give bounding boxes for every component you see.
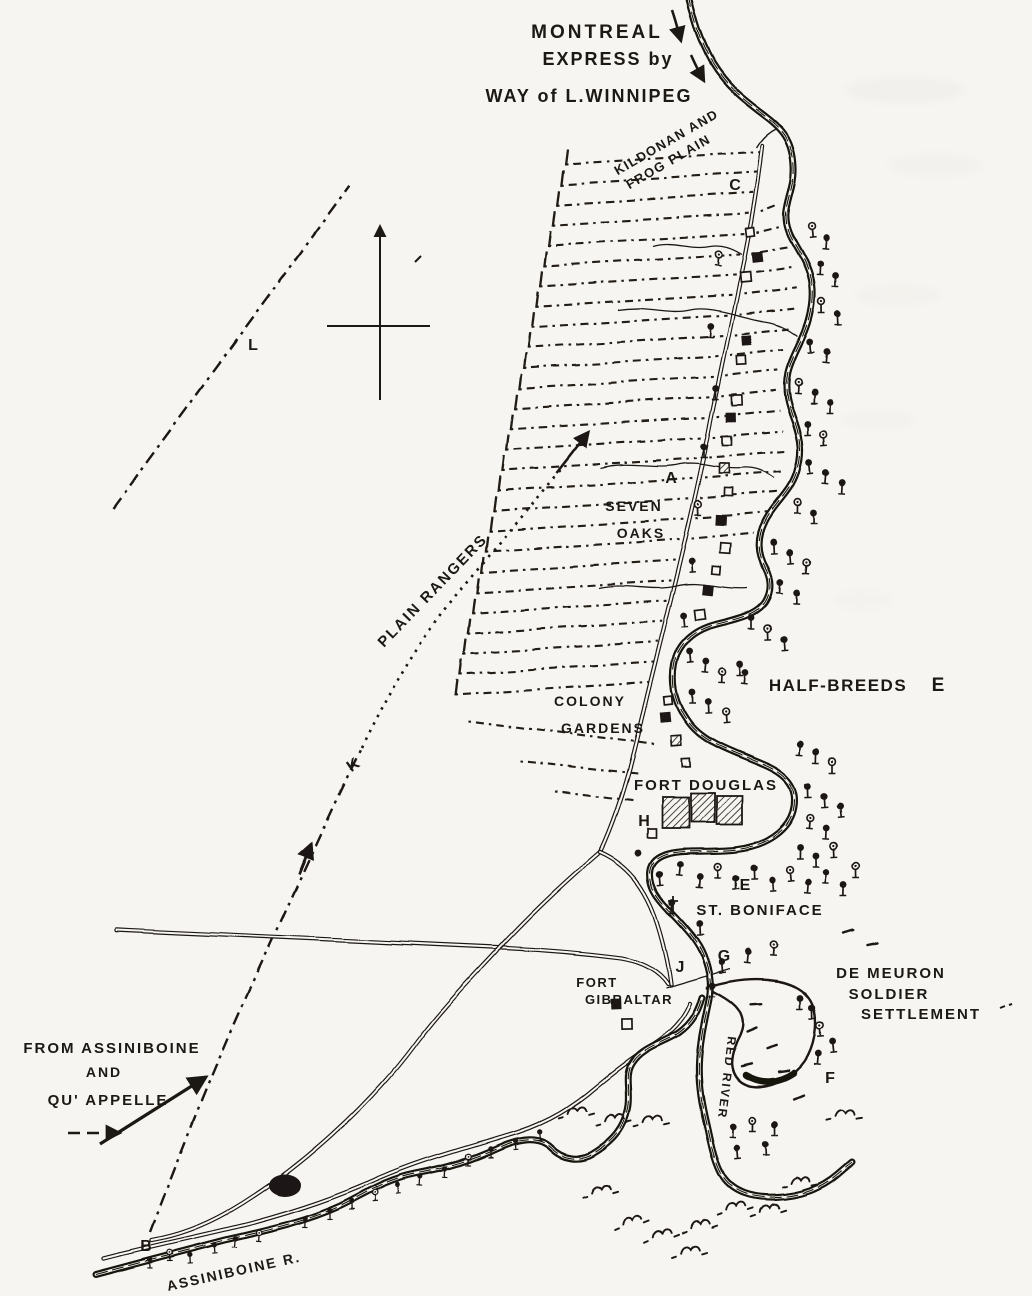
map-line (473, 601, 667, 613)
map-line (541, 274, 736, 286)
house-icon (664, 696, 673, 705)
tree-icon (714, 250, 722, 265)
tree-icon (816, 1022, 824, 1037)
label-de-meuron-1: DE MEURON (836, 965, 946, 982)
house-icon (622, 1019, 632, 1029)
map-line (498, 478, 693, 490)
tree-icon (822, 348, 830, 363)
tree-icon (806, 338, 814, 353)
house-icon (723, 436, 732, 445)
map-line (515, 394, 517, 410)
tree-icon (749, 1117, 756, 1132)
map-line (748, 267, 792, 273)
tree-icon (829, 759, 836, 773)
tree-icon (770, 940, 778, 955)
bush-icon (681, 1218, 717, 1233)
road-junction-dot (635, 850, 642, 857)
tree-icon (820, 430, 828, 445)
tree-icon (804, 420, 811, 435)
map-line (498, 475, 500, 491)
bush-icon (643, 1228, 679, 1244)
map-line (511, 417, 706, 429)
map-labels: MONTREAL EXPRESS by WAY of L.WINNIPEG KI… (23, 22, 1012, 1294)
map-line (460, 659, 462, 675)
marsh-dash (843, 929, 853, 932)
tree-icon (764, 624, 771, 639)
map-line (692, 533, 754, 539)
marsh-dash (779, 1070, 789, 1073)
map-line (524, 356, 719, 368)
tree-icon (780, 634, 788, 649)
map-line (743, 288, 796, 294)
label-from-assiniboine-3: QU' APPELLE (48, 1092, 169, 1109)
map-line (536, 295, 731, 307)
route-arrows (68, 10, 704, 1144)
tree-icon (442, 1166, 448, 1177)
marker-k: K (344, 755, 364, 776)
label-montreal-3: WAY of L.WINNIPEG (485, 86, 692, 106)
tree-icon (729, 1122, 737, 1137)
tree-icon (733, 875, 740, 889)
house-icon (743, 336, 752, 345)
tree-icon (696, 920, 704, 935)
map-line (511, 414, 513, 430)
marker-b: B (140, 1238, 152, 1255)
tree-icon (741, 668, 749, 683)
tree-icon (808, 222, 816, 237)
house-icon (752, 252, 762, 262)
marker-e-half-breeds: E (932, 675, 945, 696)
tree-icon (762, 1140, 770, 1155)
map-line (507, 438, 702, 450)
map-line (761, 206, 776, 212)
map-line (502, 458, 697, 470)
marker-h: H (638, 813, 650, 830)
map-figure: MONTREAL EXPRESS by WAY of L.WINNIPEG KI… (0, 0, 1032, 1296)
tree-icon (702, 658, 710, 673)
house-icon (703, 585, 713, 595)
map-line (558, 190, 560, 206)
tree-icon (768, 876, 776, 891)
tree-icon (676, 860, 684, 875)
tree-icon (806, 458, 814, 473)
house-icon (716, 515, 725, 524)
map-line (524, 353, 526, 369)
label-gardens: GARDENS (561, 720, 645, 736)
tree-icon (372, 1190, 378, 1202)
label-montreal-1: MONTREAL (531, 22, 663, 43)
montreal-express-arrow-2 (691, 55, 704, 81)
tree-icon (831, 273, 838, 288)
label-assiniboine-river: ASSINIBOINE R. (165, 1249, 302, 1294)
map-line (519, 373, 521, 389)
tree-icon (733, 1144, 741, 1159)
tree-icon (694, 500, 701, 515)
marsh-dash (741, 1064, 751, 1066)
tree-icon (187, 1252, 193, 1263)
tree-icon (688, 557, 696, 572)
road-river-branch (756, 128, 777, 148)
label-fort-douglas: FORT DOUGLAS (634, 777, 778, 794)
map-line (735, 329, 789, 335)
tree-icon (822, 468, 830, 483)
map-line (739, 308, 794, 314)
bush-icon (716, 1201, 752, 1215)
marsh-dash (747, 1029, 757, 1033)
label-montreal-2: EXPRESS by (542, 49, 673, 69)
trail-L-line (113, 186, 350, 508)
montreal-express-arrow-1 (672, 10, 681, 41)
map-line (507, 435, 509, 451)
label-de-meuron-2: SOLDIER (849, 986, 930, 1003)
house-icon (682, 759, 690, 767)
map-line (726, 369, 778, 375)
tree-icon (792, 588, 799, 603)
tree-icon (749, 615, 756, 629)
map-line (481, 557, 483, 573)
tree-icon (722, 708, 730, 723)
map-line (528, 333, 530, 349)
map-line (553, 210, 555, 226)
marker-f: F (825, 1070, 835, 1087)
tree-icon (770, 538, 778, 553)
marsh-dash (751, 1003, 761, 1006)
map-line (473, 598, 475, 614)
marsh-dash (767, 1045, 777, 1048)
label-st-boniface: ST. BONIFACE (696, 902, 823, 919)
marsh-dash (867, 942, 877, 944)
bush-icon (672, 1245, 708, 1258)
tree-icon (680, 612, 688, 627)
map-line (536, 292, 538, 308)
map-line (558, 193, 754, 205)
house-icon (719, 463, 729, 473)
tree-icon (656, 870, 664, 885)
tree-icon (822, 868, 830, 883)
tree-icon (696, 872, 704, 887)
tree-icon (804, 878, 812, 893)
label-half-breeds: HALF-BREEDS (769, 676, 907, 695)
bush-icon (782, 1177, 817, 1187)
map-line (494, 496, 496, 512)
house-icon (740, 272, 751, 283)
tree-icon (796, 740, 804, 755)
house-icon (732, 395, 742, 405)
map-line (532, 315, 727, 327)
map-line (700, 492, 777, 498)
map-line (468, 621, 662, 633)
tree-icon (812, 748, 819, 763)
tree-icon (794, 499, 801, 514)
tree-icon (852, 863, 859, 878)
map-line (485, 540, 679, 552)
tree-icon (814, 1050, 822, 1065)
label-seven-oaks-2: OAKS (617, 525, 665, 541)
tree-icon (836, 802, 844, 817)
tree-icon (834, 310, 842, 325)
label-fort-gibraltar-1: FORT (576, 975, 617, 990)
map-line (456, 679, 458, 695)
tree-icon (786, 866, 794, 881)
map-line (528, 336, 723, 348)
house-icon (746, 228, 755, 237)
marker-j: J (676, 959, 685, 976)
label-fort-gibraltar-2: GIBRALTAR (585, 992, 673, 1007)
tree-icon (806, 814, 814, 829)
plain-rangers-trail (150, 432, 588, 1232)
tree-cluster-blob (269, 1174, 301, 1196)
map-line (464, 639, 466, 655)
marker-g: G (718, 948, 730, 965)
tree-icon (810, 509, 817, 524)
map-line (519, 376, 714, 388)
map-line (562, 169, 564, 185)
house-icon (694, 609, 705, 620)
tree-icon (395, 1182, 401, 1194)
tree-icon (688, 689, 695, 704)
map-line (549, 231, 551, 247)
marker-c: C (729, 177, 741, 194)
tree-icon (829, 1038, 837, 1053)
map-line (709, 451, 785, 457)
map-line (566, 149, 568, 165)
bush-icon (582, 1184, 618, 1197)
tree-icon (771, 1121, 778, 1136)
bush-icon (750, 1203, 786, 1217)
tree-icon (776, 578, 784, 593)
marker-e-st-boniface: E (740, 877, 751, 894)
bush-icon (613, 1214, 649, 1230)
marker-a: A (665, 470, 677, 487)
trees (147, 222, 859, 1267)
tree-icon (830, 842, 838, 857)
label-from-assiniboine-1: FROM ASSINIBOINE (23, 1040, 200, 1057)
settlement-tick-mark (1000, 1004, 1012, 1008)
tree-icon (796, 845, 803, 860)
tree-icon (750, 864, 757, 879)
tree-icon (704, 698, 712, 713)
map-line (532, 312, 534, 328)
compass-rose (327, 226, 430, 400)
h-marker-house (647, 829, 656, 838)
map-line (468, 618, 470, 634)
house-icon (671, 736, 682, 747)
marsh-dash (795, 1095, 805, 1099)
label-from-assiniboine-2: AND (86, 1064, 122, 1080)
tree-icon (802, 558, 810, 573)
map-line (756, 227, 781, 233)
tree-icon (840, 881, 847, 896)
marker-l: L (248, 337, 258, 354)
house-icon (724, 488, 732, 496)
map-line (460, 662, 654, 674)
tree-icon (827, 399, 834, 413)
settlement-map-svg: MONTREAL EXPRESS by WAY of L.WINNIPEG KI… (0, 0, 1032, 1296)
label-colony: COLONY (554, 693, 626, 709)
house-icon (720, 543, 731, 554)
tree-icon (838, 478, 846, 493)
house-icon (737, 355, 746, 364)
tree-icon (786, 548, 794, 563)
tree-icon (822, 824, 830, 839)
map-line (502, 455, 504, 471)
tree-icon (718, 668, 726, 683)
tree-icon (706, 322, 714, 337)
map-line (520, 761, 642, 774)
tree-icon (714, 862, 721, 877)
map-line (464, 642, 658, 654)
label-seven-oaks-1: SEVEN (605, 498, 662, 514)
map-line (541, 271, 543, 287)
tree-icon (820, 792, 828, 807)
house-icon (712, 566, 721, 575)
map-line (730, 349, 783, 355)
fort-douglas-buildings (647, 793, 743, 838)
map-line (545, 251, 547, 267)
map-line (553, 213, 749, 225)
red-river-path (650, 0, 852, 1197)
bush-icon (634, 1116, 669, 1127)
tree-icon (812, 853, 819, 868)
map-line (722, 390, 776, 396)
map-line (696, 512, 768, 518)
map-line (549, 234, 744, 246)
label-de-meuron-3: SETTLEMENT (861, 1006, 981, 1023)
map-line (515, 397, 710, 409)
label-plain-rangers: PLAIN RANGERS (374, 531, 491, 651)
map-line (490, 516, 492, 532)
tree-icon (794, 378, 802, 393)
tree-icon (797, 995, 804, 1009)
tree-icon (686, 648, 694, 663)
house-icon (660, 712, 670, 722)
tree-icon (804, 782, 811, 797)
map-line (545, 254, 740, 266)
house-icon (727, 413, 735, 421)
tree-icon (818, 299, 825, 314)
map-line (477, 580, 671, 592)
tree-icon (744, 948, 752, 963)
tree-icon (816, 260, 824, 275)
tree-icon (822, 234, 830, 249)
map-line (481, 560, 675, 572)
page-bleedthrough-smudges (832, 77, 981, 609)
bush-icon (827, 1109, 862, 1120)
tree-icon (810, 388, 817, 403)
map-line (477, 577, 479, 593)
